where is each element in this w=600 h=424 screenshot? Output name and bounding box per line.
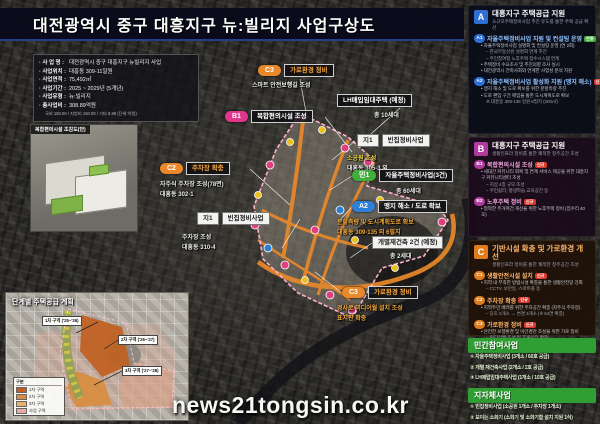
callout-line: 경사로 미디어월 설치 조성 [337,303,403,312]
status-tag: 신규 [524,322,536,328]
item-code: B1 [474,160,485,169]
phase-legend: 구분 1차 구역 2차 구역 3차 구역 사업 구역 [13,377,65,416]
callout-line: 대흥동 309-135 외 6필지 [337,227,400,236]
status-tag: 신규 [535,162,547,168]
item-code: C1 [474,271,485,280]
section-a-item: A2 자율주택정비사업 활성화 지원 (맹지 해소) 신규 • 맹지 해소 및 … [474,77,590,105]
c3-badge: C3 [342,287,365,298]
phase-plan-panel: 단계별 주택공급 계획 1차 구역 ('25~'26) 2차 구역 ('26~'… [5,292,189,421]
list-item: ③ LH매입임대주택사업 (1개소 / 10호 공급) [470,373,598,384]
legend-swatch [16,394,27,400]
item-code: C3 [474,320,485,329]
min1-badge: 민1 [352,170,376,181]
legend-header: 구분 [16,379,62,386]
news-watermark: news21tongsin.co.kr [172,392,409,419]
callout-c3-bottom: C3 가로환경 정비 [342,286,418,299]
callout-rebuild: 개별재건축 2건 (예정) [372,236,443,249]
poster: 대전광역시 중구 대흥지구 뉴:빌리지 사업구상도 사 업 명대전광역시 중구 … [0,0,600,424]
phase-callout: 3차 구역 ('27~'28) [122,366,162,376]
callout-a2: A2 맹지 해소 / 도로 확보 [352,200,447,213]
callout-line: 표지판 확충 [337,313,366,322]
status-tag: 신규 [518,297,530,303]
phase-callout: 1차 구역 ('25~'26) [42,316,82,326]
section-b-item: B1 복합편의시설 조성 신규 • 세대간 커뮤니티 회복 및 연계 서비스 제… [474,160,590,194]
project-info-box: 사 업 명대전광역시 중구 대흥지구 뉴빌리지 사업 사업위치대흥동 309-1… [33,54,199,122]
facility-rendering: 복합편의시설 조감도(안) [30,124,138,232]
rendering-caption: 복합편의시설 조감도(안) [31,125,90,134]
callout-line: 총 10세대 [374,110,399,119]
info-row: 사 업 명대전광역시 중구 대흥지구 뉴빌리지 사업 [39,59,193,68]
info-row: 사업기간2025 ~ 2029년 (5개년) [39,85,193,94]
callout-line: 자주식 주차장 조성(78면) [160,179,224,188]
c2-badge: C2 [160,163,183,174]
list-item: ① 빈집정비사업 (소공원 1개소 / 주차장 1개소) [470,402,598,413]
bullet: • 지역주민 배려를 위한 주차공간 확충 (자주식 주차장) [474,305,590,311]
status-tag: 연중 [584,36,596,42]
callout-line: 스마트 안전보행길 조성 [252,80,311,89]
ji2-badge: 지1 [357,134,379,147]
callout-line: 분할측량 및 도시계획도로 확보 [337,217,414,226]
private-projects-list: ① 자율주택정비사업 (3개소 / 60호 공급) ② 개별 재건축사업 (2개… [470,352,598,384]
bullet: • 열악한 주거여건 개선을 위한 노후주택 정비 (집수리 40호) [474,206,590,219]
callout-line: 총 60세대 [396,186,421,195]
ji1-badge: 지1 [197,212,219,225]
section-a-title: 대흥지구 주택공급 지원 [492,10,590,18]
legend-swatch [16,387,27,393]
callout-lh: LH매입임대주택 (예정) [337,94,412,107]
section-b-badge: B [474,142,488,156]
item-code: C2 [474,296,485,305]
section-b-subtitle: 생활인프라 정비를 통한 쾌적한 정주공간 조성 [492,151,579,157]
legend-swatch [16,408,27,414]
private-projects-header: 민간참여사업 [468,338,596,353]
list-item: ① 자율주택정비사업 (3개소 / 60호 공급) [470,352,598,363]
b1-badge: B1 [225,111,248,122]
section-b-panel: B 대흥지구 주택공급 지원 생활인프라 정비를 통한 쾌적한 정주공간 조성 … [468,137,596,237]
section-a-panel: A 대흥지구 주택공급 지원 소규모주택정비사업 추진 유도를 통한 주택 공급… [468,5,596,134]
callout-c3-top: C3 가로환경 정비 [258,64,334,77]
section-c-subtitle: 생활인프라 정비를 통한 쾌적한 정주공간 조성 [492,262,590,268]
municipal-projects-list: ① 빈집정비사업 (소공원 1개소 / 주차장 1개소) ② 보이는 소화기 (… [470,402,598,423]
section-a-badge: A [474,10,488,24]
page-title-bar: 대전광역시 중구 대흥지구 뉴:빌리지 사업구상도 [0,8,464,41]
info-row: 사업면적75,492㎡ [39,76,193,85]
phase-callout: 2차 구역 ('26~'27) [118,335,158,345]
a2-badge: A2 [352,201,375,212]
section-c-panel: C 기반시설 확충 및 가로환경 개선 생활인프라 정비를 통한 쾌적한 정주공… [468,240,596,336]
budget-note: 국비 150.00 / 지방비 150.00 / 기타 8.89 (단위:억원) [39,111,193,117]
bullet: ※ 대흥동 309-135 일원 6필지 (300㎡) [474,99,590,105]
section-c-badge: C [474,245,488,259]
section-a-item: A1 자율주택정비사업 지원 및 컨설팅 운영 연중 • 자율주택정비사업 설명… [474,34,590,74]
info-row: 사업위치대흥동 309-11일원 [39,68,193,77]
status-tag: 신규 [594,79,600,85]
callout-min1: 민1 자율주택정비사업(3건) [352,169,453,182]
item-code: A1 [474,34,485,43]
item-code: B2 [474,197,485,206]
section-b-item: B2 노후주택 정비 신규 • 열악한 주거여건 개선을 위한 노후주택 정비 … [474,197,590,219]
callout-line: 총 2세대 [390,251,412,260]
status-tag: 신규 [524,199,536,205]
info-row: 사업유형뉴:빌리지 [39,93,193,102]
callout-line: 소공원 조성 [347,153,376,162]
callout-ji1: 지1 빈집정비사업 [197,212,270,225]
section-c-item: C1 생활안전시설 설치 신규 • 지역 내 부족한 방범시설 확충을 통한 생… [474,271,590,293]
callout-line: 대흥동 310-4 [182,242,216,251]
bullet: – 주민쉼터, 평생학습·교육공간 등 [474,188,590,194]
legend-swatch [16,401,27,407]
section-c-item: C2 주차장 확충 신규 • 지역주민 배려를 위한 주차공간 확충 (자주식 … [474,296,590,318]
info-row: 총사업비308.89억원 [39,102,193,111]
phase-panel-title: 단계별 주택공급 계획 [12,297,74,307]
callout-b1: B1 복합편의시설 조성 [225,110,313,123]
callout-line: 대흥동 302-1 [160,189,194,198]
municipal-projects-header: 지자체사업 [468,388,596,403]
c3-badge: C3 [258,65,281,76]
callout-c2: C2 주차장 확충 [160,162,230,175]
bullet: – CCTV, 보안등, 스마트폴 등 [474,286,590,292]
list-item: ② 개별 재건축사업 (2개소 / 2호 공급) [470,363,598,374]
section-b-title: 대흥지구 주택공급 지원 [492,142,579,150]
bullet: • 대전광역시 건축사회와 연계한 사업성 분석 지원 [474,68,590,74]
bullet: – 당초 2개소 → 변경 3개소 (※ 54면 확충) [474,311,590,317]
page-title: 대전광역시 중구 대흥지구 뉴:빌리지 사업구상도 [33,12,376,36]
section-c-title: 기반시설 확충 및 가로환경 개선 [492,245,590,261]
callout-line: 주차장 조성 [182,232,211,241]
status-tag: 신규 [535,273,547,279]
bullet: • 세대간 커뮤니티 회복 및 연계 서비스 제공을 위한 대흥지구 커뮤니티센… [474,169,590,182]
section-a-subtitle: 소규모주택정비사업 추진 유도를 통한 주택 공급 확산 [492,19,590,31]
callout-ji2: 지1 빈집정비사업 [357,134,430,147]
list-item: ② 보이는 소화기 (소화기 및 소화기함 설치 지원 1식) [470,413,598,424]
